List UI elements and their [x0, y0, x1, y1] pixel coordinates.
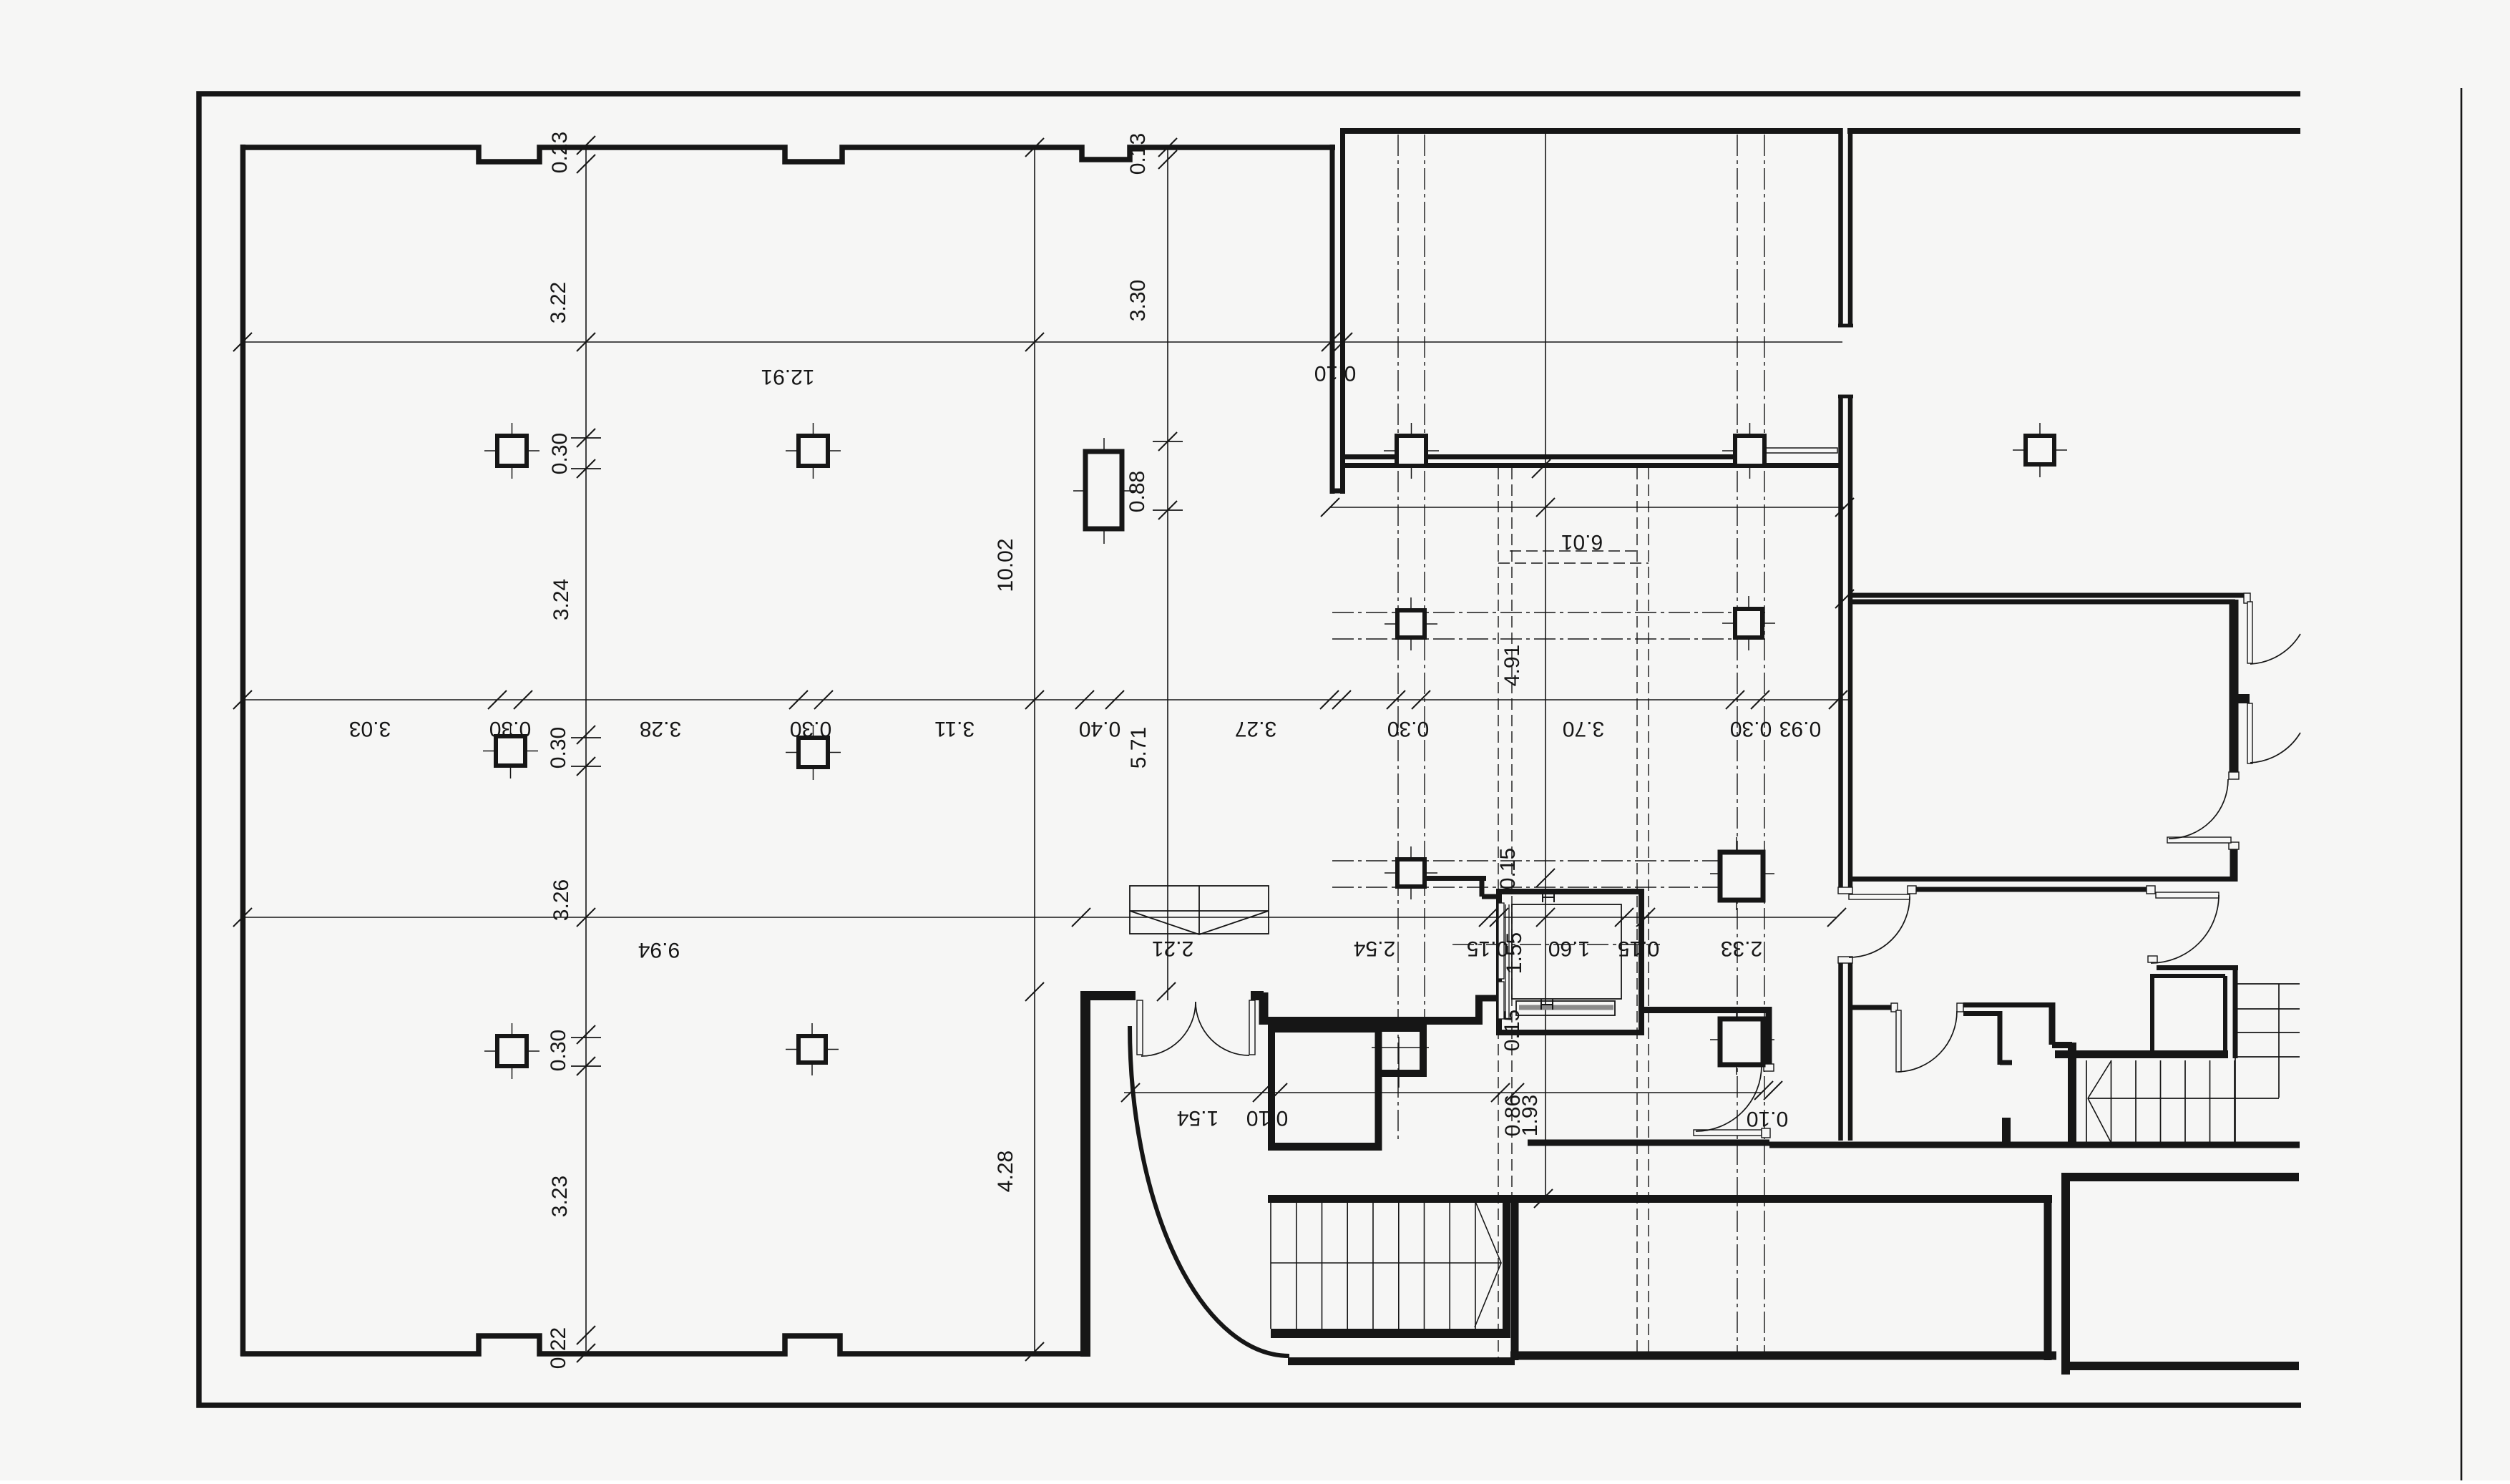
svg-text:6.01: 6.01 — [1561, 530, 1603, 554]
svg-text:0.15: 0.15 — [1500, 1010, 1524, 1051]
svg-text:5.71: 5.71 — [1127, 727, 1151, 768]
svg-text:2.54: 2.54 — [1354, 937, 1395, 960]
svg-text:3.28: 3.28 — [640, 717, 681, 741]
svg-text:0.93: 0.93 — [1779, 717, 1821, 741]
svg-text:2.21: 2.21 — [1152, 937, 1193, 960]
svg-text:0.22: 0.22 — [547, 1327, 570, 1369]
svg-text:3.23: 3.23 — [548, 1176, 572, 1217]
svg-text:0.10: 0.10 — [1747, 1107, 1788, 1131]
svg-text:3.22: 3.22 — [547, 282, 570, 323]
svg-text:3.26: 3.26 — [550, 879, 573, 921]
svg-text:0.30: 0.30 — [1387, 717, 1429, 741]
svg-text:0.13: 0.13 — [1126, 133, 1150, 175]
svg-text:0.23: 0.23 — [548, 132, 572, 173]
svg-text:3.11: 3.11 — [934, 717, 975, 741]
svg-text:3.30: 3.30 — [1126, 280, 1150, 321]
svg-text:0.88: 0.88 — [1125, 471, 1149, 512]
svg-text:3.27: 3.27 — [1235, 717, 1276, 741]
svg-text:3.24: 3.24 — [550, 579, 573, 620]
svg-text:0.30: 0.30 — [548, 433, 572, 474]
svg-text:0.15: 0.15 — [1618, 937, 1659, 960]
svg-text:1.93: 1.93 — [1518, 1095, 1542, 1136]
svg-text:3.70: 3.70 — [1563, 717, 1604, 741]
svg-text:0.30: 0.30 — [1730, 717, 1772, 741]
svg-text:0.30: 0.30 — [489, 717, 531, 741]
svg-text:0.30: 0.30 — [547, 727, 570, 768]
svg-text:0.40: 0.40 — [1079, 717, 1120, 741]
svg-text:0.10: 0.10 — [1246, 1106, 1288, 1130]
svg-text:1.55: 1.55 — [1503, 932, 1526, 974]
svg-text:4.91: 4.91 — [1500, 645, 1524, 686]
svg-text:0.15: 0.15 — [1496, 848, 1520, 889]
svg-text:4.28: 4.28 — [994, 1151, 1017, 1192]
svg-text:10.02: 10.02 — [994, 538, 1017, 592]
svg-text:12.91: 12.91 — [761, 365, 814, 389]
svg-text:1.54: 1.54 — [1177, 1106, 1219, 1130]
svg-text:0.10: 0.10 — [1314, 361, 1356, 385]
svg-text:3.03: 3.03 — [349, 717, 391, 741]
svg-text:1.60: 1.60 — [1548, 937, 1590, 960]
svg-text:2.33: 2.33 — [1721, 937, 1762, 960]
svg-text:0.30: 0.30 — [547, 1030, 570, 1071]
svg-text:0.30: 0.30 — [790, 717, 831, 741]
svg-text:9.94: 9.94 — [638, 938, 680, 962]
